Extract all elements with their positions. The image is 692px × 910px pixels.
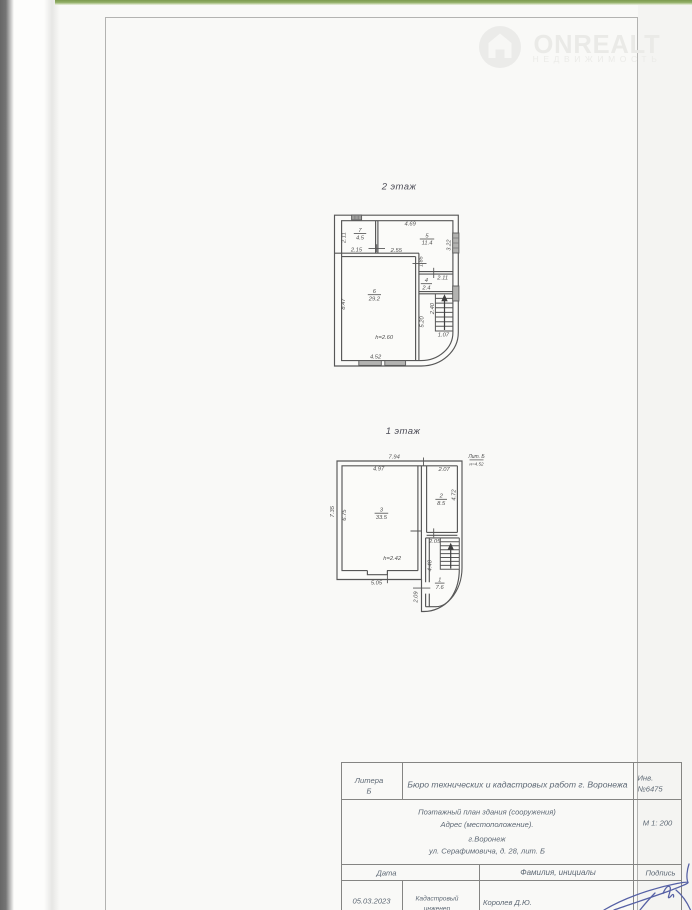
svg-text:2.11: 2.11: [342, 232, 348, 244]
svg-text:4: 4: [425, 278, 428, 284]
svg-text:5.05: 5.05: [371, 581, 383, 587]
svg-text:Б: Б: [367, 787, 372, 796]
svg-text:4.52: 4.52: [370, 355, 382, 361]
svg-text:5.20: 5.20: [420, 315, 426, 327]
svg-text:Инв.: Инв.: [638, 774, 654, 783]
svg-text:4.72: 4.72: [452, 489, 458, 501]
svg-text:Дата: Дата: [375, 868, 396, 877]
svg-text:М 1: 200: М 1: 200: [643, 818, 673, 827]
svg-text:4.5: 4.5: [356, 235, 365, 241]
svg-text:4.97: 4.97: [373, 467, 385, 473]
svg-text:Подпись: Подпись: [645, 869, 675, 878]
svg-text:Кадастровый: Кадастровый: [416, 895, 459, 903]
svg-text:Адрес (местоположение).: Адрес (местоположение).: [440, 820, 534, 829]
svg-text:h=2.42: h=2.42: [383, 556, 402, 562]
svg-text:Поэтажный план здания (сооруже: Поэтажный план здания (сооружения): [418, 808, 556, 817]
svg-text:8.5: 8.5: [437, 501, 446, 507]
svg-text:1.85: 1.85: [419, 255, 425, 266]
svg-text:2.11: 2.11: [436, 275, 448, 281]
svg-text:Бюро технических и кадастровых: Бюро технических и кадастровых работ г. …: [407, 780, 627, 790]
svg-text:Королев Д.Ю.: Королев Д.Ю.: [483, 898, 532, 907]
svg-text:3.22: 3.22: [447, 239, 453, 251]
svg-text:7.94: 7.94: [389, 454, 400, 460]
svg-text:ул. Серафимовича, д. 28, лит.: ул. Серафимовича, д. 28, лит. Б: [428, 846, 545, 855]
svg-text:29.2: 29.2: [368, 297, 381, 303]
svg-text:7.35: 7.35: [330, 505, 336, 517]
svg-text:НЕДВИЖИМОСТЬ: НЕДВИЖИМОСТЬ: [533, 54, 662, 64]
svg-text:Лит. Б: Лит. Б: [467, 454, 485, 460]
svg-text:4.40: 4.40: [427, 559, 433, 571]
svg-text:2.05: 2.05: [428, 539, 441, 545]
svg-text:г.Воронеж: г.Воронеж: [468, 835, 506, 844]
svg-text:1: 1: [438, 578, 441, 584]
svg-text:2.4: 2.4: [421, 285, 430, 291]
svg-text:6.75: 6.75: [342, 509, 348, 521]
svg-text:05.03.2023: 05.03.2023: [352, 896, 391, 905]
svg-text:н=4.52: н=4.52: [469, 462, 484, 467]
svg-text:2.15: 2.15: [350, 248, 363, 254]
svg-text:2.40: 2.40: [430, 302, 436, 315]
svg-text:h=2.60: h=2.60: [375, 335, 394, 341]
svg-text:2.09: 2.09: [414, 591, 420, 604]
svg-text:1 этаж: 1 этаж: [386, 426, 421, 437]
svg-text:33.5: 33.5: [376, 515, 388, 521]
svg-text:2.07: 2.07: [437, 467, 450, 473]
svg-text:Литера: Литера: [354, 776, 383, 785]
svg-text:инженер: инженер: [424, 906, 451, 910]
svg-text:8.47: 8.47: [341, 298, 347, 310]
svg-text:Фамилия, инициалы: Фамилия, инициалы: [520, 868, 596, 877]
svg-text:2 этаж: 2 этаж: [381, 182, 417, 193]
svg-text:11.4: 11.4: [422, 241, 433, 247]
svg-text:2.55: 2.55: [390, 248, 403, 254]
svg-text:1.07: 1.07: [438, 332, 450, 338]
svg-text:7.6: 7.6: [436, 585, 445, 591]
svg-text:4.69: 4.69: [405, 222, 417, 228]
svg-text:№6475: №6475: [638, 785, 664, 794]
